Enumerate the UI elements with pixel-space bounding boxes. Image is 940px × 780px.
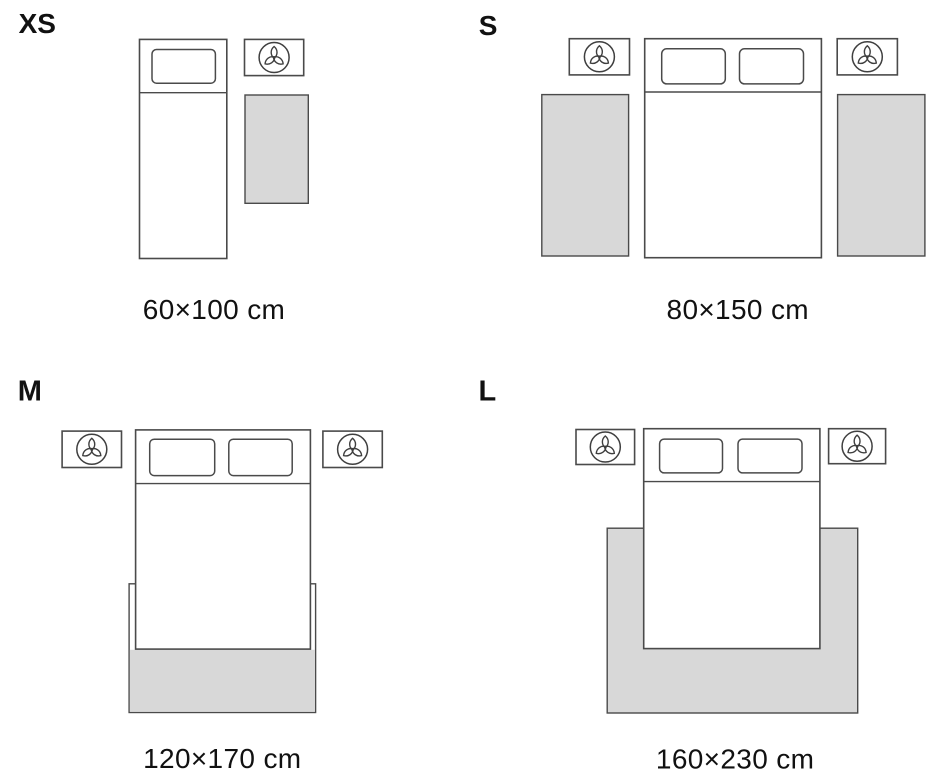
svg-text:M: M [18,376,42,408]
svg-text:120×170 cm: 120×170 cm [143,743,301,774]
svg-text:S: S [479,10,498,41]
svg-text:160×230 cm: 160×230 cm [656,744,814,775]
svg-text:80×150 cm: 80×150 cm [667,294,809,325]
svg-text:XS: XS [19,8,56,39]
svg-text:60×100 cm: 60×100 cm [143,294,285,325]
svg-text:L: L [479,376,497,408]
